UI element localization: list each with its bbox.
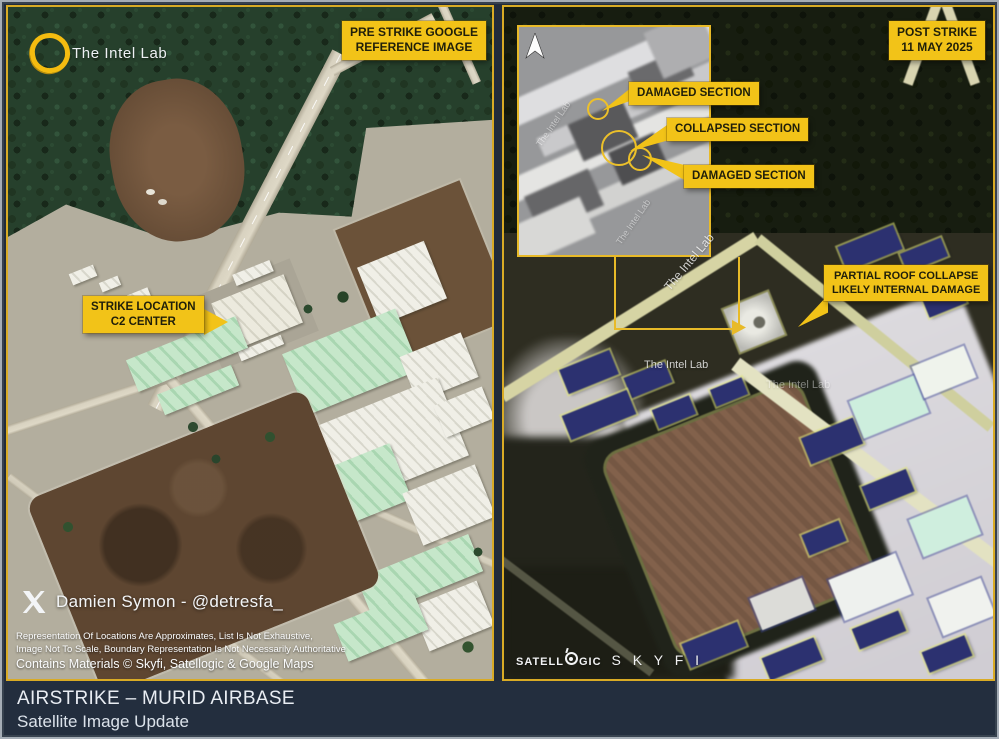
inset-zoom-image: The Intel Lab The Intel Lab — [517, 25, 711, 257]
callout-damaged-bottom: DAMAGED SECTION — [684, 165, 814, 188]
watermark: The Intel Lab — [766, 379, 830, 391]
damage-circle-small-bottom — [628, 147, 652, 171]
pre-strike-tag-line2: REFERENCE IMAGE — [350, 40, 478, 55]
provider-logos: SATELLGIC S K Y F I — [516, 652, 703, 668]
post-strike-tag: POST STRIKE 11 MAY 2025 — [889, 21, 985, 60]
intel-lab-logo-text: The Intel Lab — [72, 45, 167, 62]
disclaimer-line-1: Representation Of Locations Are Approxim… — [16, 631, 313, 642]
partial-roof-collapse-callout: PARTIAL ROOF COLLAPSE LIKELY INTERNAL DA… — [824, 265, 988, 301]
tree-spots — [8, 7, 492, 679]
attribution-text: Damien Symon - @detresfa_ — [56, 592, 283, 612]
post-strike-panel: The Intel Lab The Intel Lab The Intel La… — [502, 5, 995, 681]
callout-collapsed: COLLAPSED SECTION — [667, 118, 808, 141]
skyfi-logo: S K Y F I — [612, 652, 704, 668]
pre-strike-panel: The Intel Lab PRE STRIKE GOOGLE REFERENC… — [6, 5, 494, 681]
pre-strike-tag-line1: PRE STRIKE GOOGLE — [350, 25, 478, 40]
satellogic-suffix: GIC — [579, 656, 602, 668]
partial-roof-line1: PARTIAL ROOF COLLAPSE — [832, 269, 980, 283]
graphic-canvas: The Intel Lab PRE STRIKE GOOGLE REFERENC… — [0, 0, 999, 739]
footer-subtitle: Satellite Image Update — [17, 712, 189, 732]
callout-damaged-bottom-text: DAMAGED SECTION — [692, 169, 806, 184]
x-logo-icon — [22, 591, 46, 613]
disclaimer-line-3: Contains Materials © Skyfi, Satellogic &… — [16, 657, 314, 671]
footer-title: AIRSTRIKE – MURID AIRBASE — [17, 688, 295, 710]
satellogic-prefix: SATELL — [516, 656, 564, 668]
attribution: Damien Symon - @detresfa_ — [22, 591, 283, 613]
callout-damaged-top: DAMAGED SECTION — [629, 82, 759, 105]
partial-roof-line2: LIKELY INTERNAL DAMAGE — [832, 283, 980, 297]
satellogic-logo: SATELLGIC — [516, 652, 602, 668]
post-strike-tag-line2: 11 MAY 2025 — [897, 40, 977, 55]
callout-damaged-top-text: DAMAGED SECTION — [637, 86, 751, 101]
footer-bar: AIRSTRIKE – MURID AIRBASE Satellite Imag… — [0, 681, 999, 739]
post-strike-tag-line1: POST STRIKE — [897, 25, 977, 40]
callout-collapsed-text: COLLAPSED SECTION — [675, 122, 800, 137]
strike-location-line1: STRIKE LOCATION — [91, 300, 196, 315]
satellogic-o-icon — [565, 652, 578, 665]
disclaimer-line-2: Image Not To Scale, Boundary Representat… — [16, 644, 346, 655]
strike-location-callout: STRIKE LOCATION C2 CENTER — [83, 296, 204, 333]
watermark: The Intel Lab — [644, 359, 708, 371]
north-arrow-icon — [525, 33, 545, 59]
pre-strike-tag: PRE STRIKE GOOGLE REFERENCE IMAGE — [342, 21, 486, 60]
strike-location-line2: C2 CENTER — [91, 315, 196, 330]
